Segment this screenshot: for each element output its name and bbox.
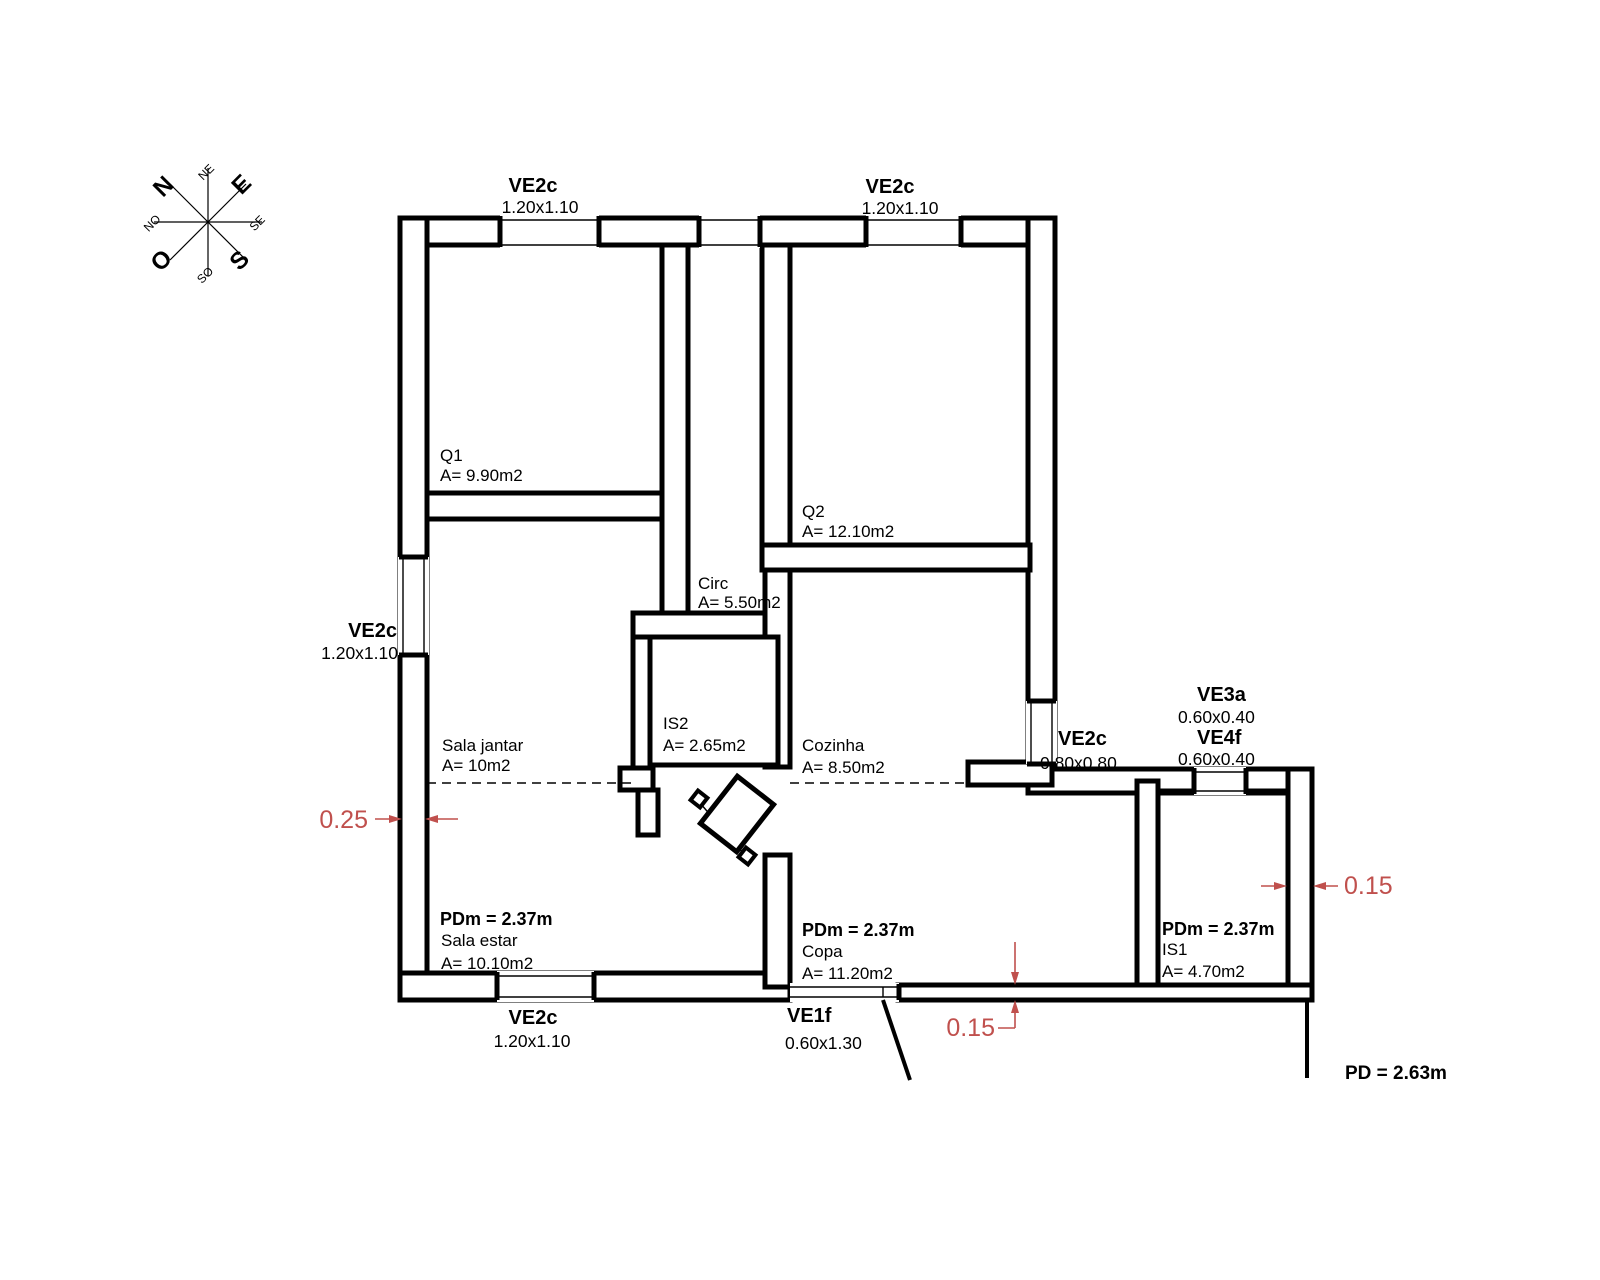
label-q2-area: A= 12.10m2 (802, 522, 894, 541)
wall-divider-lower (765, 855, 790, 987)
window-ve4f (1194, 767, 1246, 795)
dimension-wall-left-value: 0.25 (319, 806, 368, 834)
cut-line-diagonal (883, 1000, 910, 1080)
label-ve2c-top-right-size: 1.20x1.10 (862, 198, 939, 218)
compass-ne-label: NE (195, 161, 217, 183)
label-sala-jantar-name: Sala jantar (442, 736, 524, 755)
wall-door-jamb-left (638, 790, 658, 835)
wall-copa-is1 (1137, 781, 1158, 985)
label-is1-name: IS1 (1162, 940, 1188, 959)
label-is1-area: A= 4.70m2 (1162, 962, 1245, 981)
label-ve2c-right-name: VE2c (1058, 728, 1107, 750)
label-ve2c-top-left-size: 1.20x1.10 (502, 197, 579, 217)
walls (400, 218, 1312, 1000)
door-leaf (700, 776, 773, 852)
label-ve3a-name: VE3a (1197, 684, 1247, 706)
door-hinge-notch (691, 791, 708, 808)
window-ve2c-top-right (866, 215, 961, 248)
floor-plan-drawing: N E S O NE SE SO NO (0, 0, 1600, 1280)
label-is2-area: A= 2.65m2 (663, 736, 746, 755)
label-ve2c-right-size: 0.80x0.80 (1040, 753, 1117, 773)
label-ceiling-height-note: PD = 2.63m (1345, 1063, 1447, 1084)
label-is1-ceiling: PDm = 2.37m (1162, 919, 1275, 939)
dimension-wall-left: 0.25 (319, 806, 458, 834)
label-is2-name: IS2 (663, 714, 689, 733)
label-ve1f-name: VE1f (787, 1005, 832, 1027)
wall-circ-bottom (633, 613, 778, 637)
label-cozinha-name: Cozinha (802, 736, 865, 755)
window-ve2c-bottom (497, 971, 594, 1002)
compass-so-label: SO (194, 264, 216, 286)
compass-no-label: NO (141, 212, 164, 235)
label-ve2c-bottom-size: 1.20x1.10 (494, 1031, 571, 1051)
window-ve2c-top-left (500, 215, 599, 248)
compass-west-label: O (146, 245, 178, 277)
floor-plan-page: N E S O NE SE SO NO (0, 0, 1600, 1280)
dimension-wall-bottom-value: 0.15 (946, 1014, 995, 1042)
label-cozinha-area: A= 8.50m2 (802, 758, 885, 777)
compass: N E S O NE SE SO NO (141, 161, 268, 286)
wall-circ-q2 (762, 245, 790, 548)
wall-q1-sala (427, 493, 675, 519)
door-window-ve1f (790, 983, 899, 1002)
label-ve4f-size: 0.60x0.40 (1178, 749, 1255, 769)
label-q1-name: Q1 (440, 446, 463, 465)
label-ve2c-top-right-name: VE2c (866, 176, 915, 198)
interior-door (691, 776, 774, 864)
label-ve4f-name: VE4f (1197, 727, 1242, 749)
dimension-wall-right: 0.15 (1261, 872, 1393, 900)
window-openings (398, 215, 1246, 1002)
label-sala-estar-name: Sala estar (441, 931, 518, 950)
label-q2-name: Q2 (802, 502, 825, 521)
compass-north-label: N (148, 171, 179, 202)
wall-q1-circ (662, 245, 688, 617)
label-sala-estar-area: A= 10.10m2 (441, 954, 533, 973)
compass-east-label: E (226, 169, 256, 199)
wall-right-upper (1028, 218, 1055, 765)
label-copa-name: Copa (802, 942, 843, 961)
label-circ-name: Circ (698, 574, 729, 593)
wall-right-outer (1288, 769, 1312, 1000)
label-ve3a-size: 0.60x0.40 (1178, 707, 1255, 727)
label-ve2c-bottom-name: VE2c (509, 1007, 558, 1029)
label-ve2c-left-name: VE2c (348, 620, 397, 642)
window-ve2c-left (398, 557, 429, 655)
label-ve2c-top-left-name: VE2c (509, 175, 558, 197)
label-sala-estar-ceiling: PDm = 2.37m (440, 909, 553, 929)
label-circ-area: A= 5.50m2 (698, 593, 781, 612)
label-ve2c-left-size: 1.20x1.10 (321, 643, 398, 663)
window-circ-top (699, 215, 760, 248)
wall-is2-left-stub (620, 768, 653, 790)
compass-south-label: S (224, 245, 254, 275)
label-ve1f-size: 0.60x1.30 (785, 1033, 862, 1053)
label-q1-area: A= 9.90m2 (440, 466, 523, 485)
label-sala-jantar-area: A= 10m2 (442, 756, 511, 775)
compass-se-label: SE (247, 213, 268, 234)
label-copa-ceiling: PDm = 2.37m (802, 920, 915, 940)
label-copa-area: A= 11.20m2 (802, 964, 893, 983)
wall-q2-bottom (762, 545, 1030, 570)
dimension-wall-right-value: 0.15 (1344, 872, 1393, 900)
